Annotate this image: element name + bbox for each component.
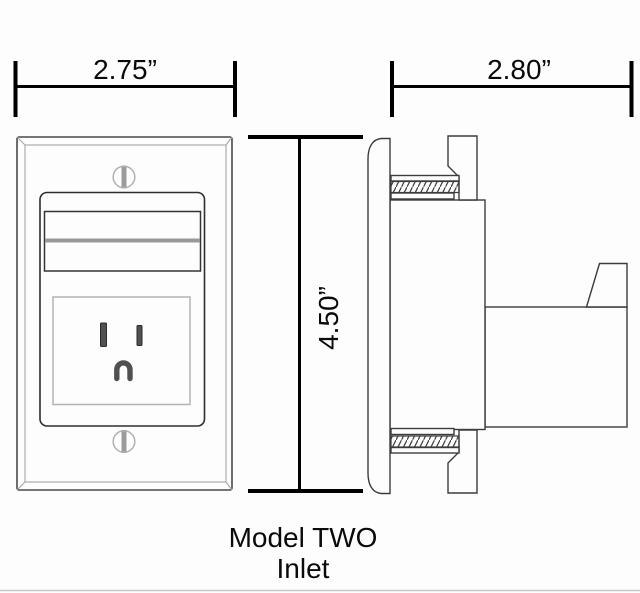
insert-divider-band (46, 239, 200, 243)
screw-side-top-base (391, 193, 454, 199)
side-view (368, 136, 627, 494)
dim-tick (233, 61, 237, 117)
side-faceplate-flange (368, 139, 390, 494)
screw-side-top (391, 176, 459, 200)
side-body-column (390, 200, 485, 430)
dim-tick (248, 135, 363, 139)
dim-tick (14, 61, 18, 117)
side-depth-label: 2.80” (487, 54, 551, 85)
screw-side-bottom-thread (391, 436, 459, 447)
screw-side-top-thread (391, 182, 459, 193)
screw-side-bottom-base (391, 429, 454, 435)
hot-slot (137, 326, 142, 346)
dim-tick (248, 489, 363, 493)
receptacle-recess (53, 297, 190, 405)
neutral-slot (101, 323, 107, 347)
dim-tick (390, 61, 394, 117)
screw-bottom-slot (122, 430, 127, 453)
caption-line1: Model TWO (229, 522, 378, 553)
technical-diagram: 2.75” 2.80” 4.50” Model TWO Inlet (0, 0, 640, 593)
screw-side-bottom-plate (391, 448, 459, 454)
screw-top-slot (122, 166, 127, 189)
front-view (17, 137, 232, 490)
dim-front-height (248, 135, 363, 493)
screw-side-bottom (391, 429, 459, 454)
front-width-label: 2.75” (93, 54, 157, 85)
screw-side-top-plate (391, 176, 459, 182)
front-height-label: 4.50” (313, 286, 344, 350)
caption: Model TWO Inlet (229, 522, 378, 584)
caption-line2: Inlet (277, 553, 330, 584)
side-housing-block (485, 307, 627, 427)
side-latch-hook (587, 264, 628, 308)
diagram-page: 2.75” 2.80” 4.50” Model TWO Inlet (0, 0, 640, 593)
dim-tick (630, 61, 634, 117)
